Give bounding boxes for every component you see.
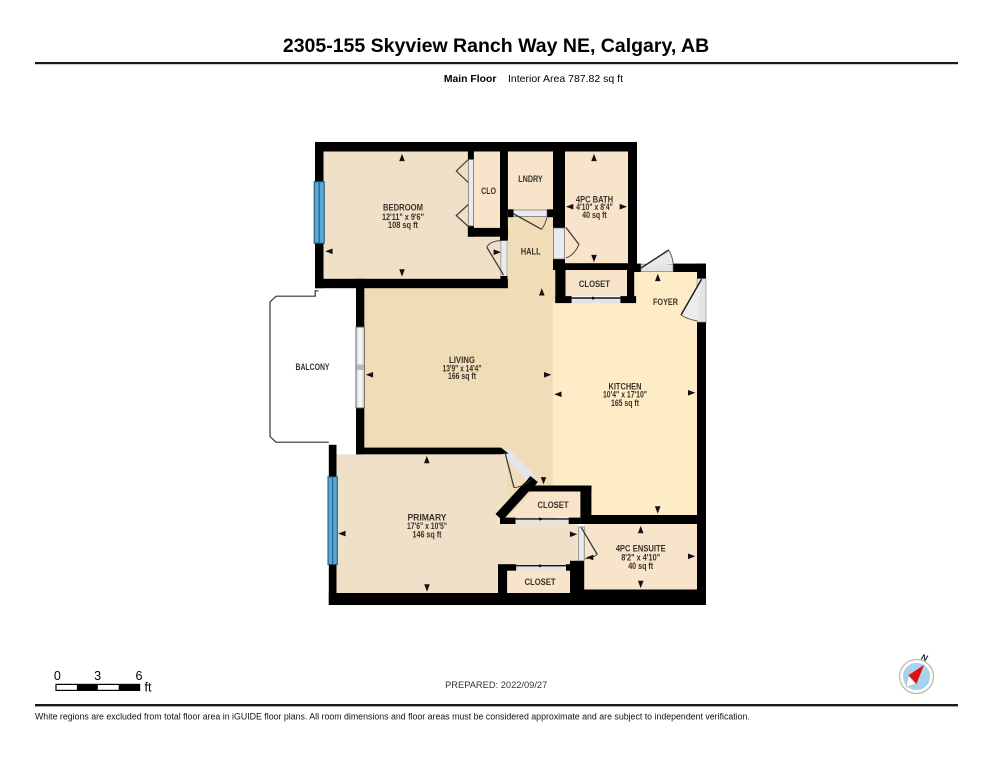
svg-text:166 sq ft: 166 sq ft [448, 371, 476, 381]
svg-text:BEDROOM: BEDROOM [383, 203, 423, 213]
svg-text:2305-155 Skyview Ranch Way NE,: 2305-155 Skyview Ranch Way NE, Calgary, … [283, 35, 709, 57]
svg-text:40 sq ft: 40 sq ft [582, 210, 607, 220]
svg-text:CLOSET: CLOSET [579, 279, 610, 289]
svg-text:CLO: CLO [481, 186, 496, 196]
svg-text:0: 0 [54, 669, 61, 683]
svg-text:LNDRY: LNDRY [518, 174, 542, 184]
svg-text:Main Floor: Main Floor [444, 74, 497, 85]
svg-text:PREPARED: 2022/09/27: PREPARED: 2022/09/27 [445, 680, 547, 690]
svg-text:HALL: HALL [521, 246, 541, 256]
svg-text:ft: ft [145, 681, 152, 695]
svg-text:3: 3 [94, 669, 101, 683]
svg-text:108 sq ft: 108 sq ft [388, 220, 418, 230]
svg-text:Interior Area 787.82 sq ft: Interior Area 787.82 sq ft [508, 73, 623, 85]
svg-text:CLOSET: CLOSET [525, 577, 556, 587]
svg-text:6: 6 [136, 669, 143, 683]
svg-text:BALCONY: BALCONY [296, 362, 330, 372]
svg-text:CLOSET: CLOSET [538, 500, 569, 510]
svg-text:165 sq ft: 165 sq ft [611, 398, 639, 408]
svg-text:146 sq ft: 146 sq ft [413, 529, 442, 539]
svg-text:FOYER: FOYER [653, 297, 678, 307]
svg-text:White regions are excluded fro: White regions are excluded from total fl… [35, 712, 750, 722]
svg-text:40 sq ft: 40 sq ft [628, 561, 653, 571]
